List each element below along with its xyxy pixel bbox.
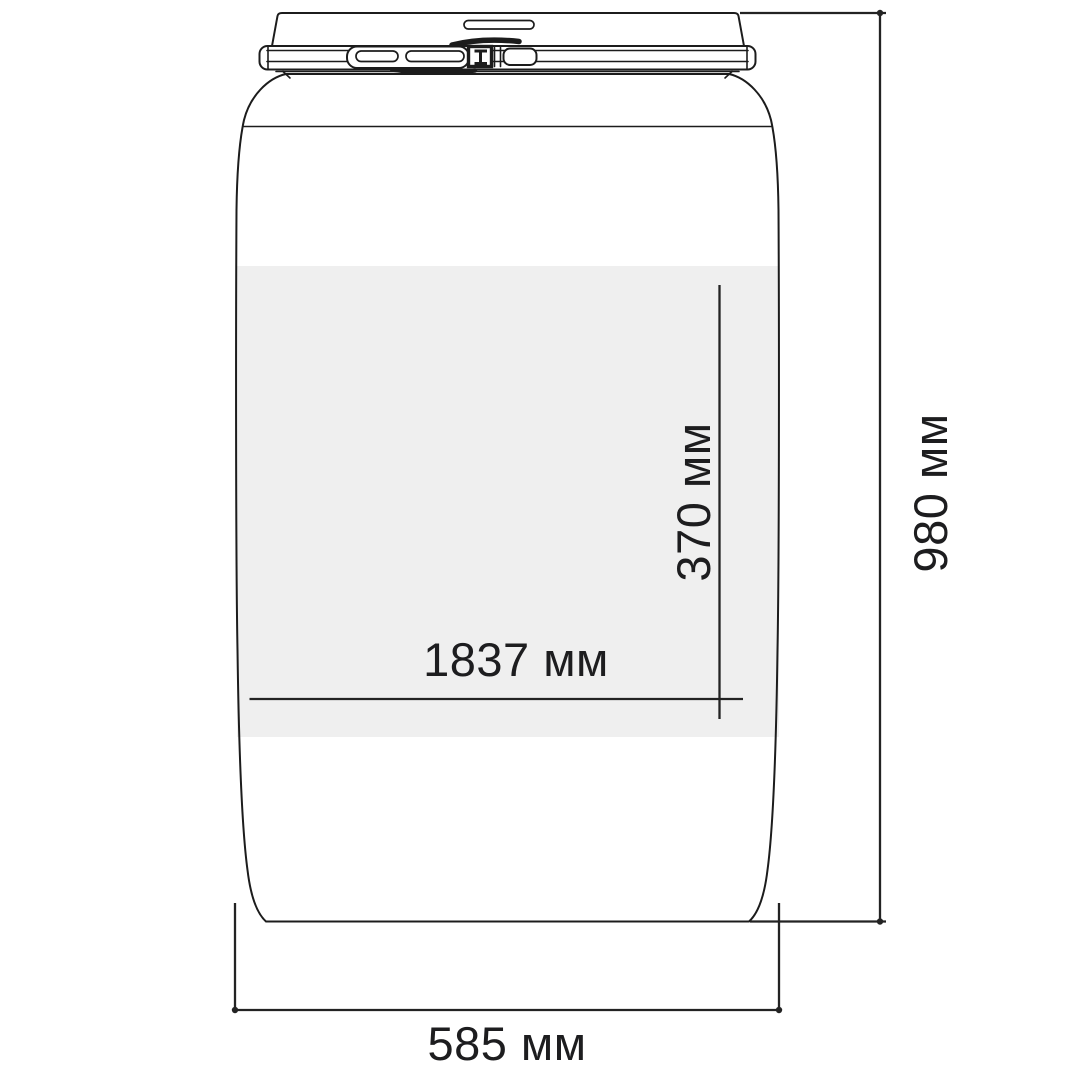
latch-lever-tab: [504, 49, 537, 66]
clamp-ring: [260, 40, 756, 78]
latch-slot-right: [406, 51, 464, 62]
overall-height-label: 980 мм: [904, 413, 957, 572]
technical-drawing-canvas: 980 мм 585 мм 1837 мм 370 мм: [0, 0, 1084, 1084]
label-area-width-label: 1837 мм: [423, 633, 609, 686]
lid-grip-tab: [464, 21, 534, 30]
dimension-overall-width: 585 мм: [232, 903, 782, 1070]
label-area-height-label: 370 мм: [667, 422, 720, 581]
overall-width-label: 585 мм: [427, 1017, 586, 1070]
barrel-dimensional-drawing: 980 мм 585 мм 1837 мм 370 мм: [0, 0, 1084, 1084]
latch-slot-left: [356, 51, 398, 62]
